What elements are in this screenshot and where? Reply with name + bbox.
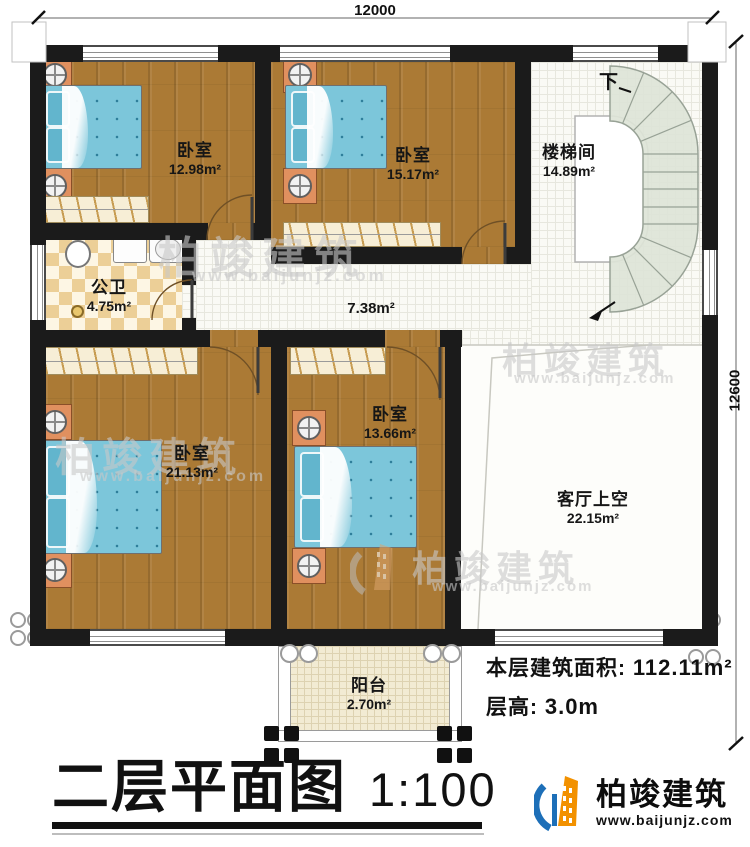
title-underline-2 — [52, 833, 484, 835]
room-label-bathroom: 公卫 4.75m² — [69, 278, 149, 314]
room-label-stairwell: 楼梯间 14.89m² — [523, 143, 615, 179]
page-title: 二层平面图 — [52, 758, 347, 818]
void-outline — [462, 345, 702, 629]
watermark-logo-icon — [350, 538, 406, 600]
room-label-living-void: 客厅上空 22.15m² — [538, 490, 648, 526]
dimension-lines — [12, 11, 743, 750]
room-label-bedroom-top-left: 卧室 12.98m² — [150, 141, 240, 177]
title-block: 二层平面图 1:100 — [52, 758, 497, 835]
room-label-bedroom-bottom-mid: 卧室 13.66m² — [345, 405, 435, 441]
room-label-bedroom-top-middle: 卧室 15.17m² — [368, 146, 458, 182]
company-logo: 柏竣建筑 www.baijunjz.com — [534, 772, 733, 834]
room-label-bedroom-bottom-left: 卧室 21.13m² — [147, 444, 237, 480]
floor-plan: 下 — [0, 0, 750, 847]
floor-height-row: 层高: 3.0m — [486, 691, 733, 721]
door-leaves — [192, 197, 505, 398]
door-arcs — [152, 195, 505, 400]
floor-area-row: 本层建筑面积: 112.11m² — [486, 652, 733, 682]
company-logo-icon — [534, 772, 590, 834]
dimension-right: 12600 — [727, 356, 744, 426]
company-url: www.baijunjz.com — [596, 812, 733, 828]
title-underline — [52, 822, 482, 829]
plan-scale: 1:100 — [369, 762, 497, 817]
info-block: 本层建筑面积: 112.11m² 层高: 3.0m — [486, 652, 733, 730]
room-label-balcony: 阳台 2.70m² — [330, 676, 408, 712]
company-name: 柏竣建筑 — [596, 778, 733, 812]
dimension-top: 12000 — [340, 2, 410, 19]
room-label-corridor: 7.38m² — [331, 300, 411, 317]
